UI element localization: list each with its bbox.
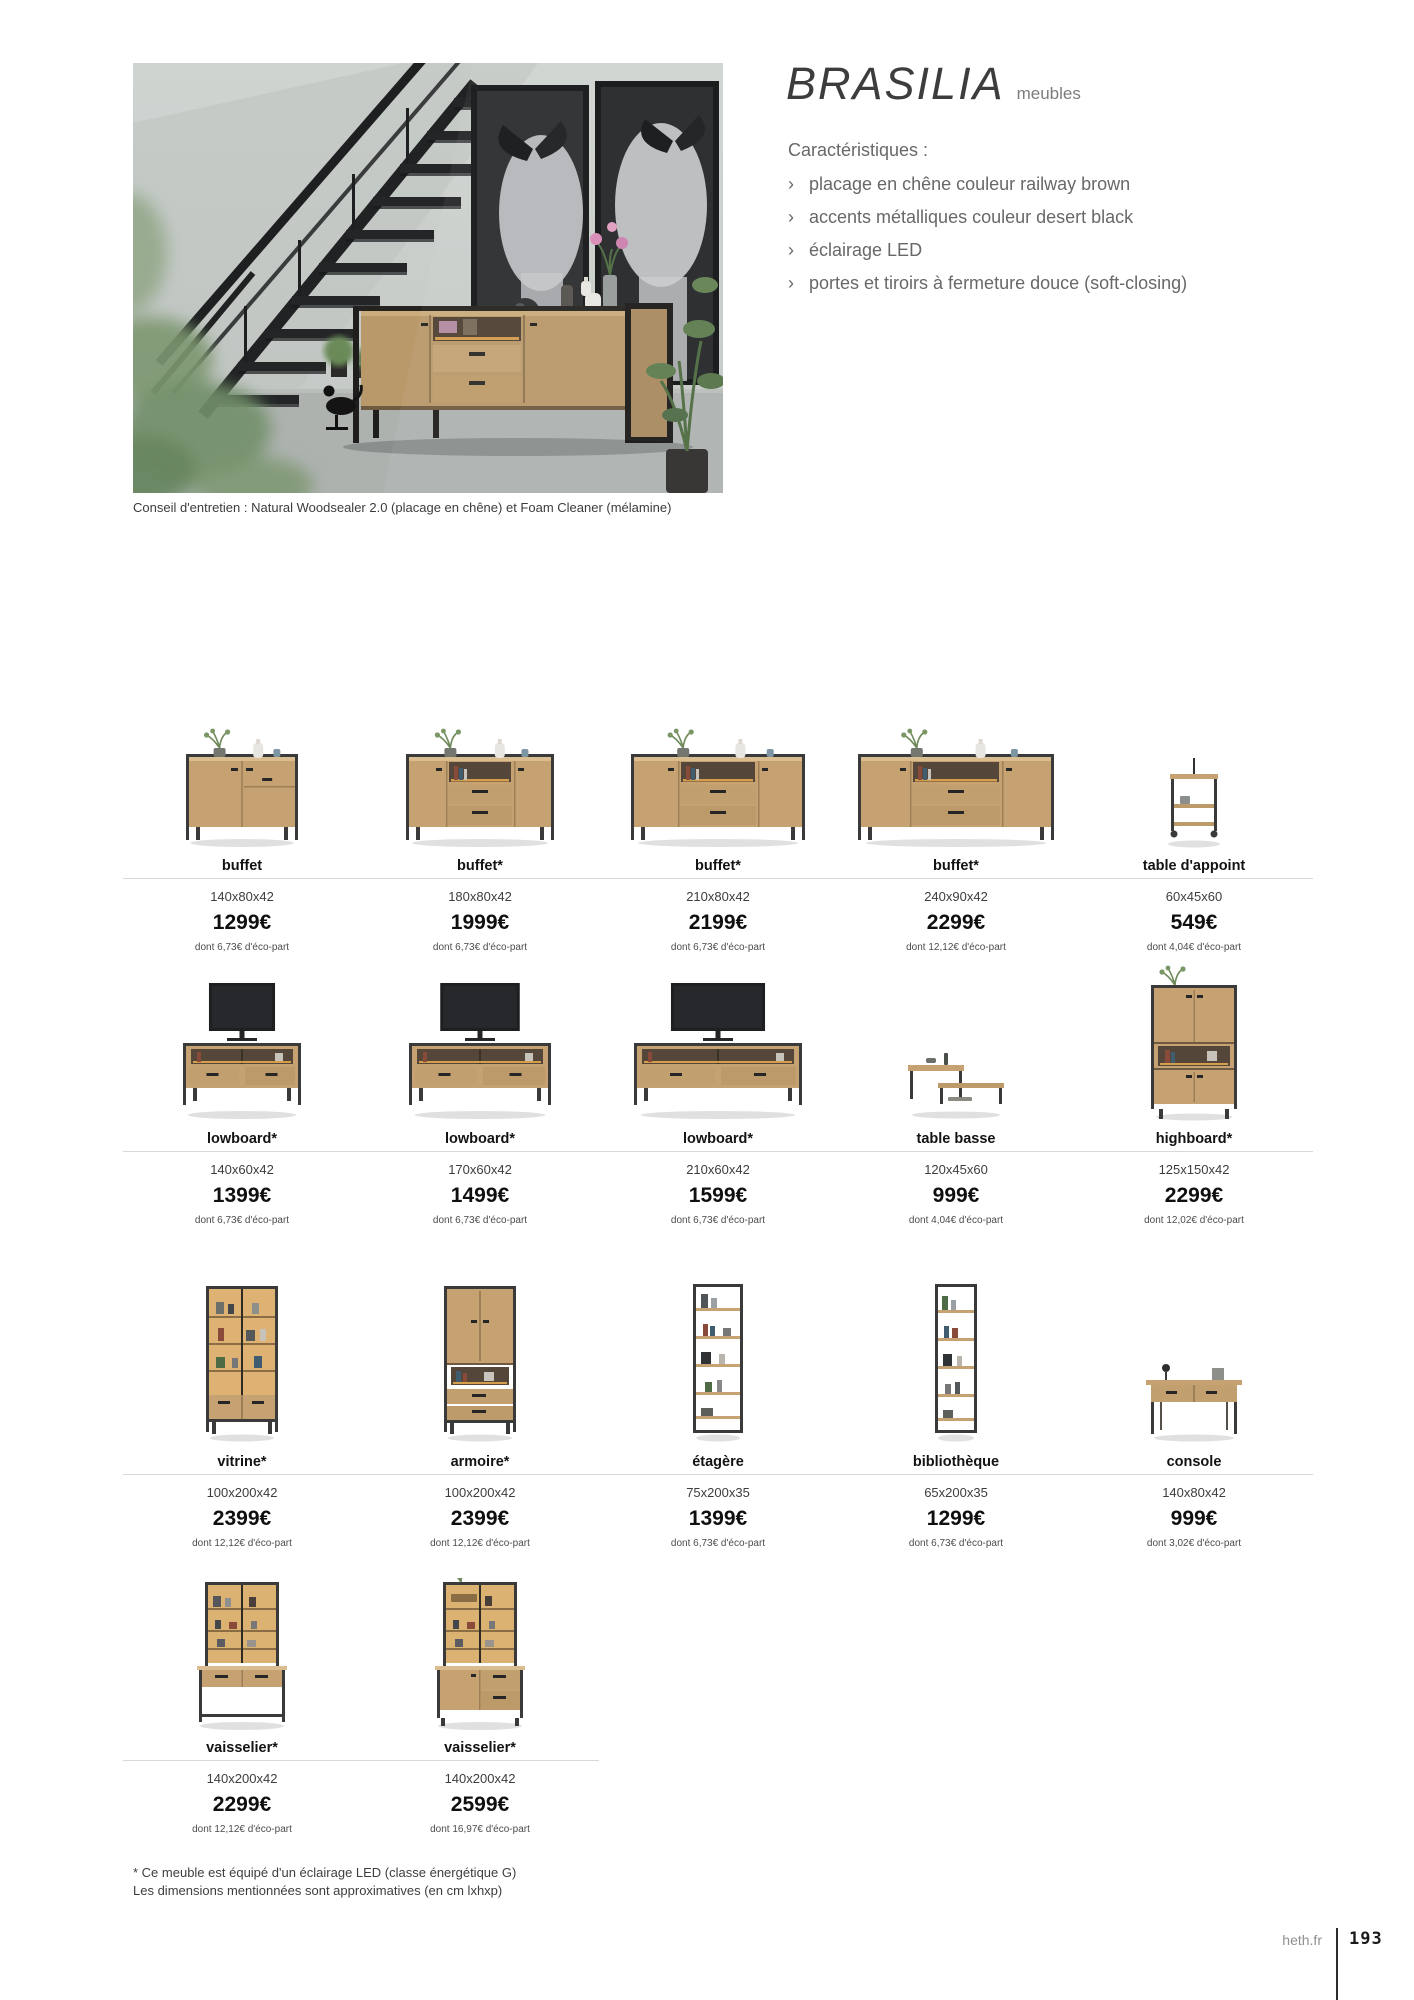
product-image — [837, 1276, 1075, 1444]
product-eco: dont 3,02€ d'éco-part — [1147, 1538, 1241, 1549]
product-cell: buffet 140x80x42 1299€ dont 6,73€ d'éco-… — [123, 698, 361, 953]
product-price: 1599€ — [689, 1184, 747, 1208]
product-price: 999€ — [1171, 1507, 1218, 1531]
bullet-icon: › — [788, 171, 794, 197]
feature-text: éclairage LED — [809, 237, 922, 263]
title-block: BRASILIAmeubles — [786, 58, 1081, 110]
product-name: highboard* — [1156, 1131, 1233, 1149]
product-cell: buffet* 210x80x42 2199€ dont 6,73€ d'éco… — [599, 698, 837, 953]
product-row-3: vitrine* 100x200x42 2399€ dont 12,12€ d'… — [123, 1276, 1313, 1549]
row-divider — [123, 1474, 1313, 1475]
product-price: 2399€ — [213, 1507, 271, 1531]
product-eco: dont 6,73€ d'éco-part — [433, 1215, 527, 1226]
bullet-icon: › — [788, 237, 794, 263]
row-divider — [123, 878, 1313, 879]
product-cell: vitrine* 100x200x42 2399€ dont 12,12€ d'… — [123, 1276, 361, 1549]
product-dims: 210x60x42 — [686, 1162, 750, 1177]
feature-text: accents métalliques couleur desert black — [809, 204, 1133, 230]
product-eco: dont 6,73€ d'éco-part — [671, 1538, 765, 1549]
product-cell: table basse 120x45x60 999€ dont 4,04€ d'… — [837, 956, 1075, 1226]
product-image — [123, 1276, 361, 1444]
product-eco: dont 6,73€ d'éco-part — [433, 942, 527, 953]
product-cell: lowboard* 170x60x42 1499€ dont 6,73€ d'é… — [361, 956, 599, 1226]
product-cell: buffet* 180x80x42 1999€ dont 6,73€ d'éco… — [361, 698, 599, 953]
feature-item: ›éclairage LED — [788, 237, 1187, 263]
product-image — [1075, 698, 1313, 848]
product-eco: dont 6,73€ d'éco-part — [909, 1538, 1003, 1549]
product-eco: dont 16,97€ d'éco-part — [430, 1824, 530, 1835]
product-eco: dont 12,12€ d'éco-part — [192, 1538, 292, 1549]
page-divider-bar — [1336, 1928, 1338, 2000]
bullet-icon: › — [788, 204, 794, 230]
site-url: heth.fr — [1230, 1932, 1322, 1948]
product-eco: dont 4,04€ d'éco-part — [1147, 942, 1241, 953]
product-name: vaisselier* — [444, 1740, 516, 1758]
bullet-icon: › — [788, 270, 794, 296]
product-name: buffet* — [695, 858, 741, 876]
page-title: BRASILIA — [786, 58, 1005, 109]
product-cell: vaisselier* 140x200x42 2299€ dont 12,12€… — [123, 1582, 361, 1835]
product-name: étagère — [692, 1454, 744, 1472]
product-dims: 140x80x42 — [1162, 1485, 1226, 1500]
product-cell: bibliothèque 65x200x35 1299€ dont 6,73€ … — [837, 1276, 1075, 1549]
product-image — [361, 1582, 599, 1730]
footnote: Les dimensions mentionnées sont approxim… — [133, 1882, 516, 1900]
product-eco: dont 6,73€ d'éco-part — [195, 942, 289, 953]
product-price: 2299€ — [1165, 1184, 1223, 1208]
product-name: table basse — [917, 1131, 996, 1149]
product-dims: 140x80x42 — [210, 889, 274, 904]
product-eco: dont 6,73€ d'éco-part — [671, 1215, 765, 1226]
product-image — [837, 956, 1075, 1121]
product-image — [123, 956, 361, 1121]
product-name: lowboard* — [445, 1131, 515, 1149]
feature-text: placage en chêne couleur railway brown — [809, 171, 1130, 197]
product-cell: table d'appoint 60x45x60 549€ dont 4,04€… — [1075, 698, 1313, 953]
footnote: * Ce meuble est équipé d'un éclairage LE… — [133, 1864, 516, 1882]
product-dims: 170x60x42 — [448, 1162, 512, 1177]
product-name: armoire* — [451, 1454, 510, 1472]
product-dims: 140x200x42 — [207, 1771, 278, 1786]
catalog-page: Conseil d'entretien : Natural Woodsealer… — [0, 0, 1414, 2000]
features-title: Caractéristiques : — [788, 140, 1187, 161]
product-price: 2399€ — [451, 1507, 509, 1531]
product-image — [599, 1276, 837, 1444]
product-name: buffet — [222, 858, 262, 876]
row-divider — [123, 1151, 1313, 1152]
product-dims: 240x90x42 — [924, 889, 988, 904]
page-subtitle: meubles — [1017, 84, 1081, 103]
product-image — [837, 698, 1075, 848]
product-dims: 140x200x42 — [445, 1771, 516, 1786]
product-price: 1399€ — [213, 1184, 271, 1208]
product-eco: dont 6,73€ d'éco-part — [671, 942, 765, 953]
product-price: 2599€ — [451, 1793, 509, 1817]
product-eco: dont 12,12€ d'éco-part — [192, 1824, 292, 1835]
product-name: lowboard* — [683, 1131, 753, 1149]
product-price: 1499€ — [451, 1184, 509, 1208]
product-image — [123, 1582, 361, 1730]
product-dims: 100x200x42 — [445, 1485, 516, 1500]
product-dims: 140x60x42 — [210, 1162, 274, 1177]
product-dims: 60x45x60 — [1166, 889, 1222, 904]
product-eco: dont 12,12€ d'éco-part — [430, 1538, 530, 1549]
product-row-4: vaisselier* 140x200x42 2299€ dont 12,12€… — [123, 1582, 599, 1835]
row-divider — [123, 1760, 599, 1761]
product-cell: vaisselier* 140x200x42 2599€ dont 16,97€… — [361, 1582, 599, 1835]
product-image — [361, 698, 599, 848]
product-image — [599, 956, 837, 1121]
product-name: table d'appoint — [1143, 858, 1246, 876]
product-cell: console 140x80x42 999€ dont 3,02€ d'éco-… — [1075, 1276, 1313, 1549]
product-eco: dont 12,12€ d'éco-part — [906, 942, 1006, 953]
product-image — [599, 698, 837, 848]
product-name: buffet* — [457, 858, 503, 876]
page-number: 193 — [1349, 1929, 1383, 1949]
feature-item: ›portes et tiroirs à fermeture douce (so… — [788, 270, 1187, 296]
hero-caption: Conseil d'entretien : Natural Woodsealer… — [133, 500, 671, 515]
product-dims: 75x200x35 — [686, 1485, 750, 1500]
product-name: vitrine* — [217, 1454, 266, 1472]
product-cell: buffet* 240x90x42 2299€ dont 12,12€ d'éc… — [837, 698, 1075, 953]
product-price: 1299€ — [927, 1507, 985, 1531]
product-price: 2299€ — [927, 911, 985, 935]
features-list: Caractéristiques : ›placage en chêne cou… — [788, 140, 1187, 296]
product-dims: 210x80x42 — [686, 889, 750, 904]
product-image — [123, 698, 361, 848]
product-name: lowboard* — [207, 1131, 277, 1149]
product-price: 549€ — [1171, 911, 1218, 935]
product-image — [361, 1276, 599, 1444]
product-dims: 100x200x42 — [207, 1485, 278, 1500]
product-image — [1075, 956, 1313, 1121]
product-row-2: lowboard* 140x60x42 1399€ dont 6,73€ d'é… — [123, 956, 1313, 1226]
feature-text: portes et tiroirs à fermeture douce (sof… — [809, 270, 1187, 296]
product-name: vaisselier* — [206, 1740, 278, 1758]
product-dims: 120x45x60 — [924, 1162, 988, 1177]
product-eco: dont 12,02€ d'éco-part — [1144, 1215, 1244, 1226]
product-cell: lowboard* 210x60x42 1599€ dont 6,73€ d'é… — [599, 956, 837, 1226]
product-price: 1399€ — [689, 1507, 747, 1531]
product-cell: highboard* 125x150x42 2299€ dont 12,02€ … — [1075, 956, 1313, 1226]
product-price: 2299€ — [213, 1793, 271, 1817]
product-dims: 180x80x42 — [448, 889, 512, 904]
product-name: buffet* — [933, 858, 979, 876]
product-image — [1075, 1276, 1313, 1444]
product-eco: dont 4,04€ d'éco-part — [909, 1215, 1003, 1226]
product-image — [361, 956, 599, 1121]
product-row-1: buffet 140x80x42 1299€ dont 6,73€ d'éco-… — [123, 698, 1313, 953]
product-price: 2199€ — [689, 911, 747, 935]
product-dims: 65x200x35 — [924, 1485, 988, 1500]
product-dims: 125x150x42 — [1159, 1162, 1230, 1177]
product-eco: dont 6,73€ d'éco-part — [195, 1215, 289, 1226]
product-name: console — [1167, 1454, 1222, 1472]
feature-item: ›placage en chêne couleur railway brown — [788, 171, 1187, 197]
footnotes: * Ce meuble est équipé d'un éclairage LE… — [133, 1864, 516, 1900]
product-price: 1999€ — [451, 911, 509, 935]
product-cell: étagère 75x200x35 1399€ dont 6,73€ d'éco… — [599, 1276, 837, 1549]
feature-item: ›accents métalliques couleur desert blac… — [788, 204, 1187, 230]
product-cell: lowboard* 140x60x42 1399€ dont 6,73€ d'é… — [123, 956, 361, 1226]
hero-image — [133, 63, 723, 493]
product-price: 1299€ — [213, 911, 271, 935]
product-name: bibliothèque — [913, 1454, 999, 1472]
product-cell: armoire* 100x200x42 2399€ dont 12,12€ d'… — [361, 1276, 599, 1549]
product-price: 999€ — [933, 1184, 980, 1208]
